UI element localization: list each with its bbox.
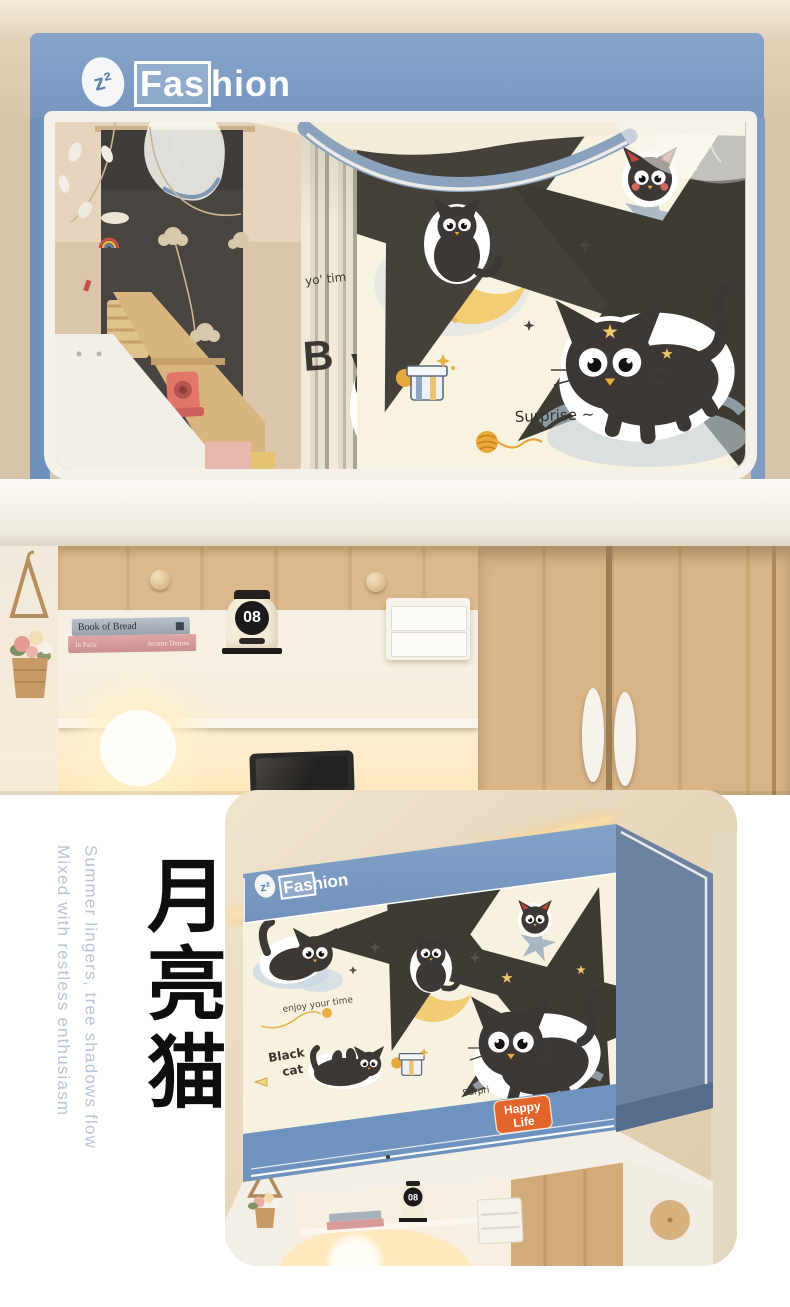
book-bottom: In Paris Jerome Dumas <box>68 634 196 653</box>
tagline-line-2: Mixed with restless enthusiasm <box>50 845 77 1195</box>
wardrobe-handle <box>582 688 604 782</box>
zz-sleep-icon: z² <box>77 53 130 112</box>
brand-name: Fashion <box>134 61 291 107</box>
room-behind-curtain <box>55 122 301 469</box>
drawer-organizer <box>386 598 470 660</box>
svg-text:Life: Life <box>513 1114 536 1131</box>
flower-basket <box>0 546 58 795</box>
product-title-cn: 月亮猫 <box>122 854 238 1118</box>
top-photo: z² Fashion <box>0 0 790 795</box>
cabinet-knob <box>150 570 170 590</box>
brand-logo: z² Fashion <box>82 57 291 107</box>
canopy-top-band: z² Fashion <box>30 33 764 119</box>
happy-life-badge: Happy Life <box>493 1095 553 1135</box>
cabinet-knob <box>366 572 386 592</box>
clock-digits: 08 <box>408 1193 418 1203</box>
surprise-text: Surprise ~ <box>515 405 595 426</box>
pleat-letter-b: B <box>301 331 335 381</box>
canopy-left-edge <box>30 118 50 479</box>
wardrobe <box>478 546 790 795</box>
bed-opening: yo' tim B <box>55 122 745 469</box>
book-top: Book of Bread <box>72 617 190 636</box>
tagline-line-1: Summer lingers, tree shadows flow <box>77 845 104 1195</box>
book-stack: Book of Bread In Paris Jerome Dumas <box>72 617 197 653</box>
book-logo-icon <box>176 622 184 630</box>
drawer-organizer <box>477 1198 523 1244</box>
canopy-right-edge <box>751 118 765 479</box>
flip-clock: 08 <box>226 590 278 652</box>
bed-base-panel <box>0 479 790 546</box>
printed-curtain-panel: Surprise ~ <box>411 122 745 469</box>
desk-lamp-glow <box>100 710 176 786</box>
vertical-tagline: Summer lingers, tree shadows flow Mixed … <box>50 845 104 1195</box>
yarn-ball-icon <box>322 1008 332 1018</box>
wardrobe-handle <box>614 692 636 786</box>
product-photo-card: 08 z² <box>225 790 737 1266</box>
zz-sleep-icon: z² <box>259 879 271 894</box>
monitor <box>249 750 354 795</box>
cabinet-unit: Book of Bread In Paris Jerome Dumas 08 <box>0 546 790 795</box>
left-wall <box>0 546 58 795</box>
clock-digits: 08 <box>235 601 269 635</box>
wood-cabinet <box>511 1162 627 1266</box>
